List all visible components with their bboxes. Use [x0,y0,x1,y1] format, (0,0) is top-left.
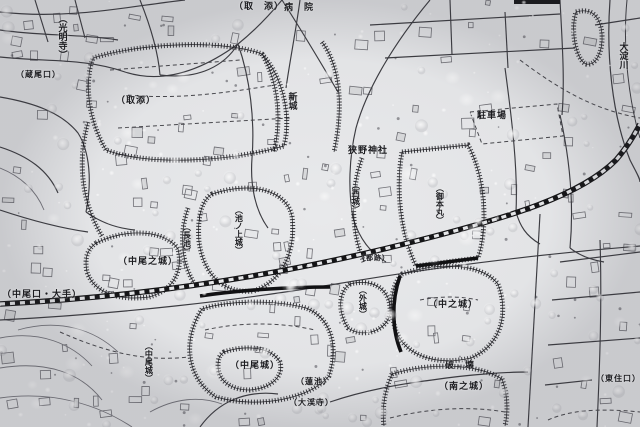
map-photo: （光明寺）（取 添）病 院（蔵尾口）（取添）新城大淀川駐車場狭野神社（西城）（御… [0,0,640,427]
photo-vignette [0,0,640,427]
map-art [0,0,640,427]
